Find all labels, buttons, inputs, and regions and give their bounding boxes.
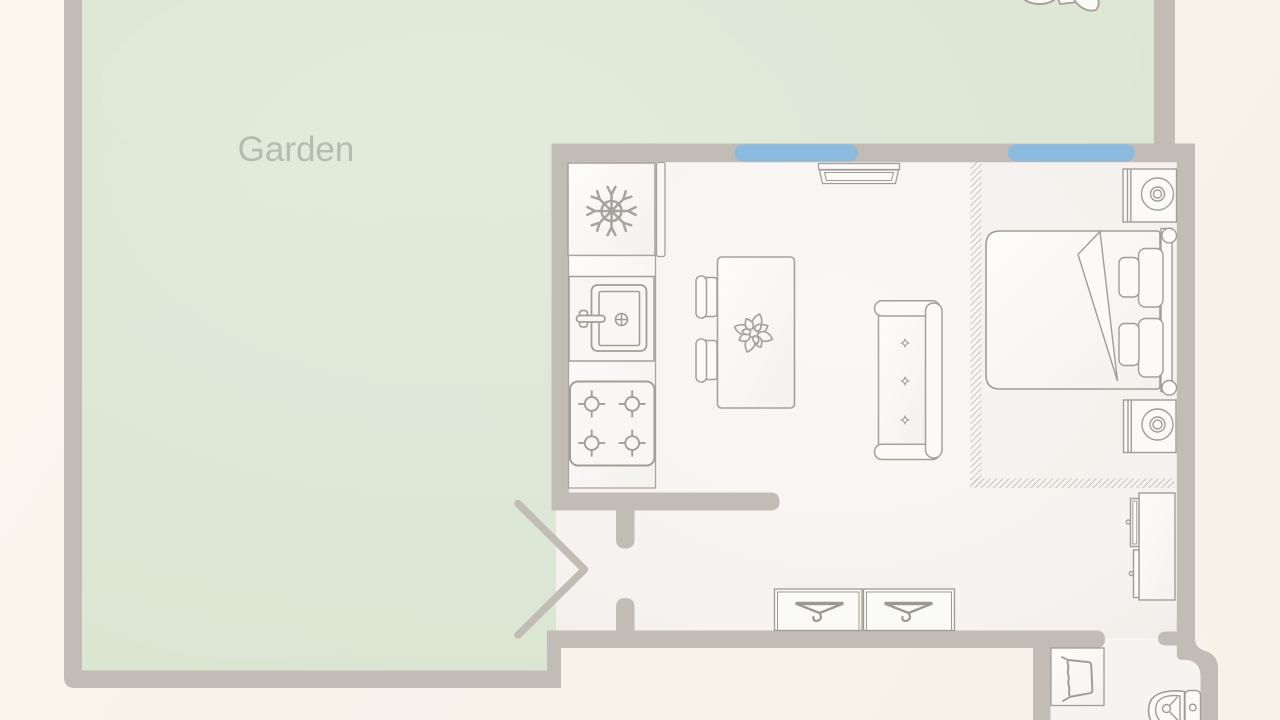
svg-text:Garden: Garden	[238, 130, 355, 169]
